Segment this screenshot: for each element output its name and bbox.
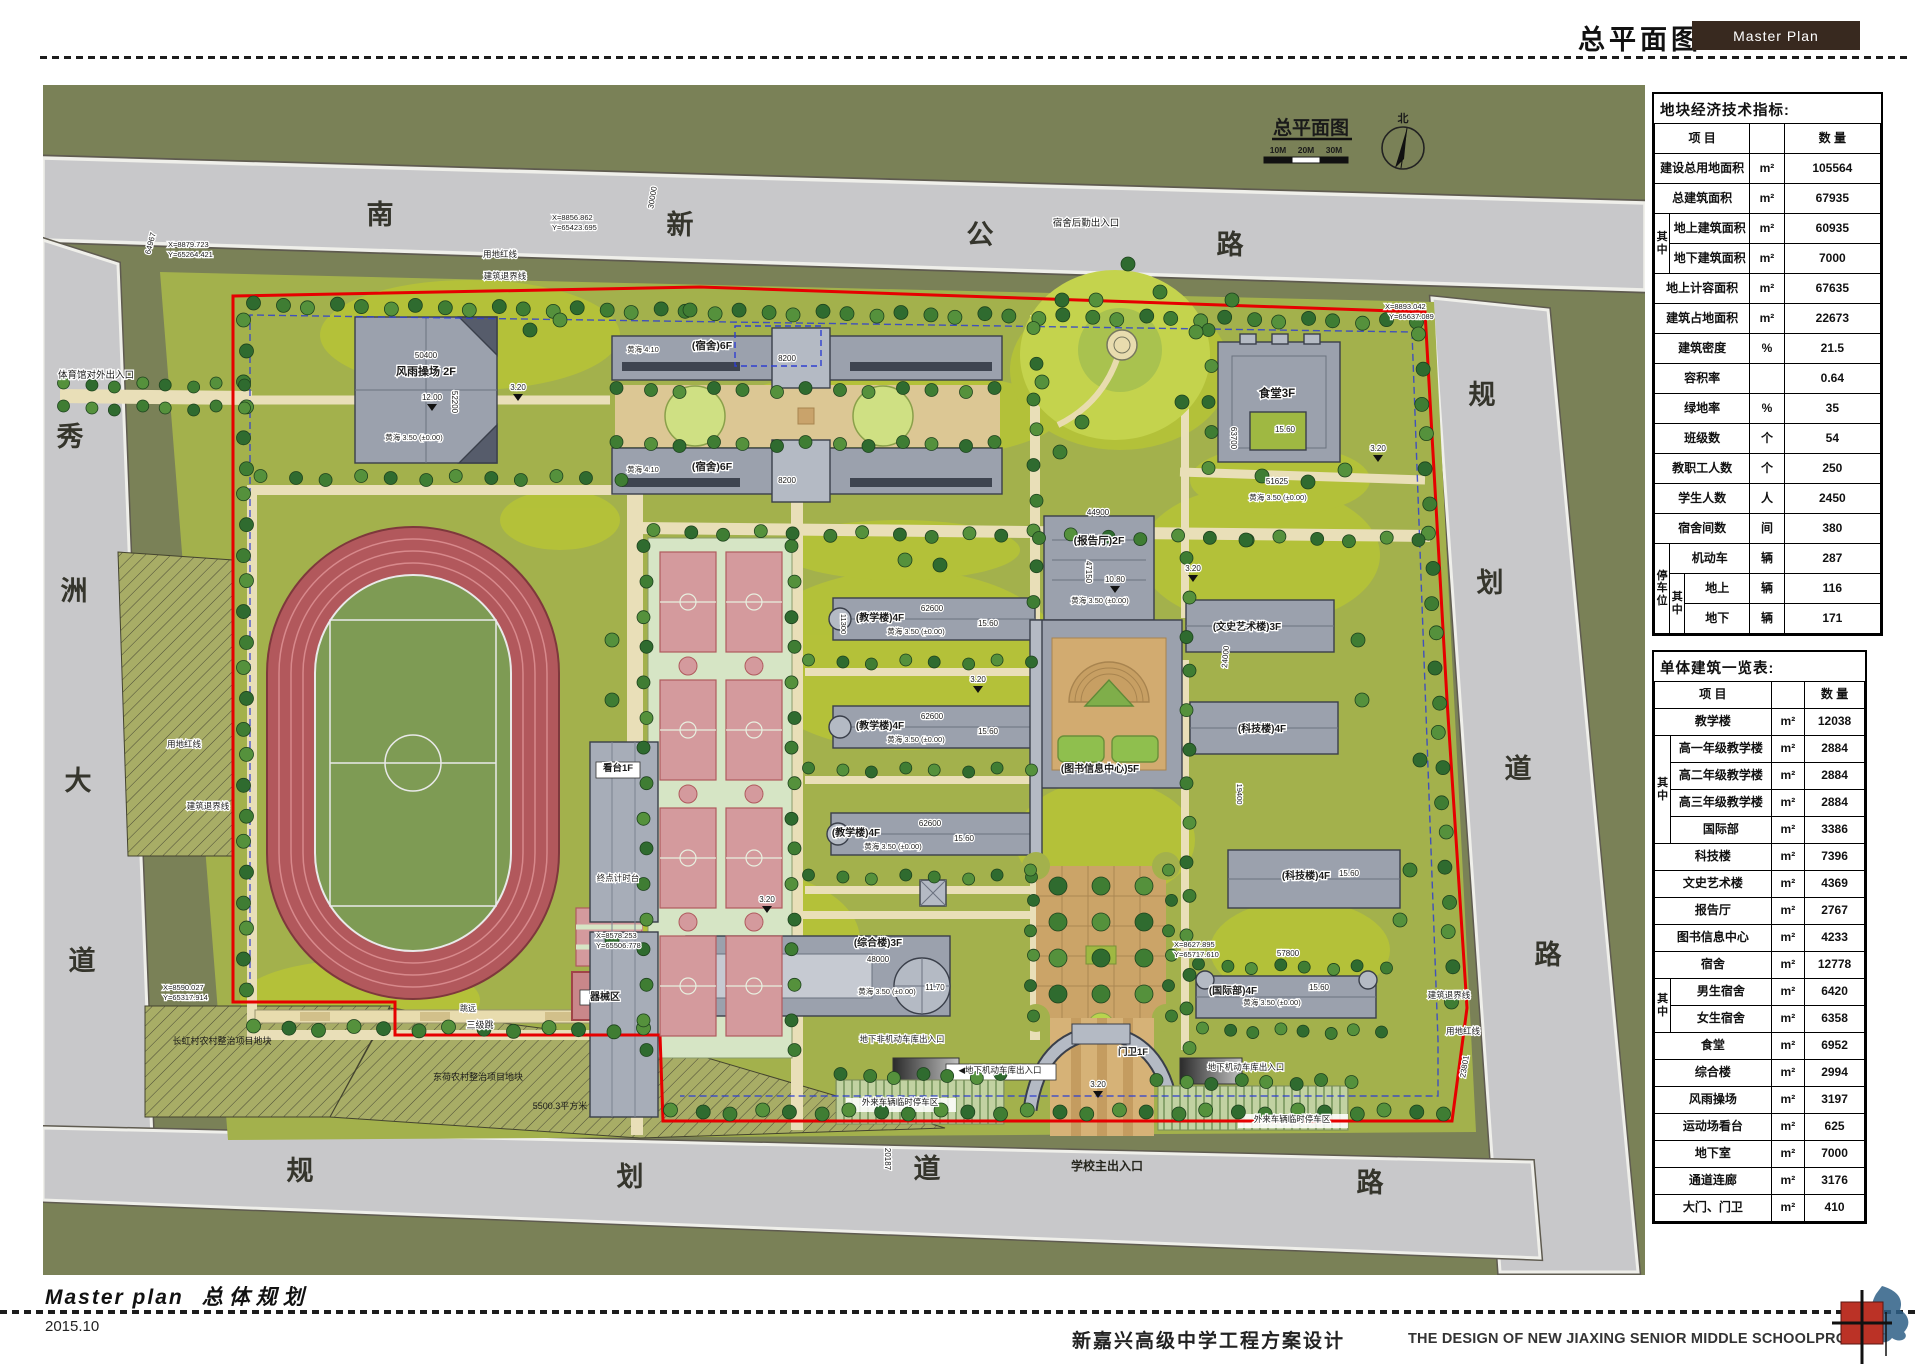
tree (856, 526, 869, 539)
tree (1164, 311, 1178, 325)
table-cell: m² (1771, 871, 1804, 898)
map-label: 黄海 3.50 (±0.00) (887, 734, 945, 744)
tree (1180, 856, 1193, 869)
table-cell: 地下 (1685, 604, 1750, 634)
table-cell: 60935 (1784, 214, 1880, 244)
table-cell: m² (1771, 790, 1804, 817)
tree (1355, 693, 1369, 707)
table-cell: m² (1771, 817, 1804, 844)
tree (507, 1024, 521, 1038)
tree (1030, 423, 1043, 436)
table-row: 其中地上建筑面积m²60935 (1655, 214, 1881, 244)
tree (893, 528, 906, 541)
table-cell: 地下室 (1655, 1141, 1772, 1168)
tree (1356, 316, 1370, 330)
project-title-cn: 新嘉兴高级中学工程方案设计 (1072, 1326, 1345, 1353)
tree (1377, 1103, 1391, 1117)
table-cell: 35 (1784, 394, 1880, 424)
tree (991, 762, 1003, 774)
tree (377, 1022, 391, 1036)
map-label: 路 (1535, 939, 1563, 970)
tree (240, 518, 254, 532)
table-row: 通道连廊m²3176 (1655, 1168, 1865, 1195)
tree (1235, 1074, 1248, 1087)
map-label: 48000 (867, 955, 890, 964)
tree (1092, 985, 1110, 1003)
tree (1175, 395, 1189, 409)
tree (1028, 1010, 1040, 1022)
table-cell: 7000 (1805, 1141, 1865, 1168)
tree (924, 308, 938, 322)
map-label: 47150 (1084, 561, 1093, 584)
tree (1163, 925, 1175, 937)
tree (1025, 925, 1037, 937)
table-row: 教职工人数个250 (1655, 454, 1881, 484)
map-label: X=8578.253 (596, 931, 637, 940)
tree (897, 382, 910, 395)
tree (933, 558, 947, 572)
map-label: 食堂3F (1259, 386, 1295, 400)
tree (1441, 925, 1455, 939)
tree (1092, 877, 1110, 895)
map-label: 3.20 (510, 383, 526, 392)
tree (1225, 293, 1239, 307)
tree (961, 1105, 975, 1119)
table-cell: 个 (1750, 424, 1784, 454)
tree (1426, 561, 1440, 575)
tree (1431, 725, 1445, 739)
table-cell: 2450 (1784, 484, 1880, 514)
tree (708, 307, 722, 321)
tree (1239, 533, 1253, 547)
map-label: 门卫1F (1118, 1046, 1148, 1058)
tree (159, 402, 171, 414)
tree (963, 766, 975, 778)
tree (756, 1103, 770, 1117)
table-row: 大门、门卫m²410 (1655, 1195, 1865, 1222)
tree (1326, 314, 1340, 328)
map-label: Y=65717.610 (1174, 950, 1219, 959)
table-cell: 通道连廊 (1655, 1168, 1772, 1195)
tree (788, 575, 801, 588)
map-label: X=8590.027 (163, 983, 204, 992)
footer-dashed-rule (0, 1310, 1920, 1314)
map-label: 看台1F (603, 762, 633, 774)
tree (319, 474, 332, 487)
table-cell: 报告厅 (1655, 898, 1772, 925)
tree (640, 913, 653, 926)
tree (960, 440, 973, 453)
tree (736, 384, 749, 397)
tree (240, 574, 254, 588)
table-cell: 建设总用地面积 (1655, 154, 1750, 184)
footer-title-cn: 总体规划 (202, 1286, 310, 1309)
tree (1380, 531, 1393, 544)
tree (1135, 985, 1153, 1003)
table-row: 地下室m²7000 (1655, 1141, 1865, 1168)
map-label: 体育馆对外出入口 (58, 369, 134, 381)
table-cell: 0.64 (1784, 364, 1880, 394)
tree (664, 1103, 678, 1117)
tree (254, 470, 267, 483)
tree (708, 436, 721, 449)
table-cell: 个 (1750, 454, 1784, 484)
table-cell: 班级数 (1655, 424, 1750, 454)
table-cell: m² (1771, 898, 1804, 925)
table-cell (1750, 364, 1784, 394)
tree (542, 1021, 556, 1035)
map-label: 跳远 (460, 1003, 476, 1013)
tree (803, 869, 815, 881)
table-cell: m² (1750, 154, 1784, 184)
tree (1135, 913, 1153, 931)
tree (1202, 324, 1215, 337)
table-cell: 6420 (1805, 979, 1865, 1006)
tree (237, 660, 251, 674)
tree (1183, 743, 1196, 756)
tree (240, 344, 254, 358)
tree (485, 472, 498, 485)
map-label: 黄海 4.10 (627, 344, 659, 354)
map-label: Y=65637.089 (1389, 312, 1434, 321)
tree (732, 303, 746, 317)
tree (312, 1023, 326, 1037)
tree (1315, 1074, 1328, 1087)
map-label: 三级跳 (466, 1019, 493, 1030)
tree (640, 712, 653, 725)
tree (1351, 960, 1363, 972)
table-title: 单体建筑一览表: (1654, 652, 1865, 681)
map-label: 51625 (1266, 477, 1289, 486)
firm-logo (1830, 1284, 1916, 1368)
map-label: 44900 (1087, 508, 1110, 517)
tree (1260, 1076, 1273, 1089)
tree (1026, 656, 1038, 668)
table-row: 其中高一年级教学楼m²2884 (1655, 736, 1865, 763)
table-cell: 建筑占地面积 (1655, 304, 1750, 334)
tree (1419, 427, 1433, 441)
tree (978, 307, 992, 321)
table-row: 学生人数人2450 (1655, 484, 1881, 514)
table-cell: 高二年级教学楼 (1671, 763, 1771, 790)
tree (1049, 949, 1067, 967)
tree (1075, 415, 1089, 429)
table-cell: m² (1750, 244, 1784, 274)
tree (1425, 597, 1439, 611)
table-cell: 67935 (1784, 184, 1880, 214)
table-row: 建设总用地面积m²105564 (1655, 154, 1881, 184)
tree (1139, 1105, 1153, 1119)
tree (1049, 985, 1067, 1003)
tree (237, 896, 251, 910)
tree (1028, 949, 1040, 961)
map-label: 3.20 (1090, 1080, 1106, 1089)
tree (1423, 497, 1437, 511)
tree (785, 812, 798, 825)
table-cell: 教职工人数 (1655, 454, 1750, 484)
tree (1412, 534, 1425, 547)
tree (754, 525, 767, 538)
tree (647, 524, 660, 537)
tree (159, 379, 171, 391)
map-label: (教学楼)4F (832, 826, 880, 839)
tree (462, 303, 476, 317)
tree (948, 310, 962, 324)
tree (1180, 631, 1193, 644)
tree (842, 1103, 856, 1117)
tree (1345, 1076, 1358, 1089)
tree (925, 530, 938, 543)
map-label: 路 (1217, 229, 1245, 260)
tree (1053, 445, 1067, 459)
table-row: 宿舍m²12778 (1655, 952, 1865, 979)
tree (1026, 764, 1038, 776)
map-label: 划 (1477, 568, 1504, 598)
tree (637, 611, 650, 624)
table-row: 教学楼m²12038 (1655, 709, 1865, 736)
table-row: 风雨操场m²3197 (1655, 1087, 1865, 1114)
tree (717, 528, 730, 541)
tree (1205, 360, 1218, 373)
tree (1183, 889, 1196, 902)
tree (988, 382, 1001, 395)
map-label: 20187 (883, 1148, 892, 1171)
tree (1172, 1107, 1186, 1121)
tree (516, 302, 530, 316)
map-label: 用地红线 (167, 739, 202, 749)
map-label: (报告厅)2F (1074, 534, 1125, 547)
tree (894, 305, 908, 319)
tree (210, 377, 222, 389)
tree (384, 472, 397, 485)
table-header-cell (1750, 124, 1784, 154)
map-label: 30M (1326, 145, 1343, 155)
tree (86, 402, 98, 414)
tree (928, 871, 940, 883)
table-cell: 宿舍 (1655, 952, 1772, 979)
table-cell: 4233 (1805, 925, 1865, 952)
tree (824, 529, 837, 542)
tree (1025, 864, 1037, 876)
tree (188, 404, 200, 416)
table-cell: 高一年级教学楼 (1671, 736, 1771, 763)
table-cell: 高三年级教学楼 (1671, 790, 1771, 817)
tree (1218, 310, 1232, 324)
tree (1027, 322, 1040, 335)
tree (1166, 1010, 1178, 1022)
map-label: 黄海 3.50 (±0.00) (858, 986, 916, 996)
sheet-title: 总平面图 (1578, 18, 1702, 57)
tree (897, 436, 910, 449)
map-label: (教学楼)4F (856, 611, 904, 624)
map-label: 外来车辆临时停车区 (862, 1097, 939, 1107)
table-header-cell: 数 量 (1784, 124, 1880, 154)
map-label: (科技楼)4F (1238, 722, 1286, 735)
map-label: 50400 (415, 351, 438, 360)
tree (579, 472, 592, 485)
tree (637, 540, 650, 553)
map-label: 15.60 (1275, 425, 1296, 434)
tree (785, 943, 798, 956)
tree (1412, 327, 1426, 341)
running-track (267, 527, 559, 999)
tree (788, 978, 801, 991)
tree (901, 1107, 915, 1121)
tree (237, 952, 251, 966)
court-pad (679, 913, 697, 931)
table-cell: % (1750, 394, 1784, 424)
tree (1053, 1105, 1067, 1119)
tree (1180, 1002, 1193, 1015)
map-label: 总平面图 (1273, 116, 1349, 139)
tree (640, 777, 653, 790)
map-label: ◀地下机动车库出入口 (958, 1065, 1041, 1075)
tree (1428, 661, 1442, 675)
tree (1055, 293, 1069, 307)
tree (240, 691, 254, 705)
tree (1086, 310, 1100, 324)
tree (1338, 463, 1352, 477)
map-label: 62600 (921, 712, 944, 721)
tree (640, 978, 653, 991)
tree (1328, 963, 1340, 975)
tree (1056, 308, 1070, 322)
tree (788, 712, 801, 725)
tree (1311, 532, 1324, 545)
tree (605, 633, 619, 647)
tree (247, 296, 261, 310)
tree (887, 1072, 900, 1085)
master-plan-badge: Master Plan (1692, 21, 1860, 50)
map-label: 长虹村农村整治项目地块 (172, 1035, 271, 1046)
table-cell: m² (1771, 709, 1804, 736)
map-label: X=8893.042 (1385, 302, 1426, 311)
map-label: 62600 (921, 604, 944, 613)
tree (1092, 913, 1110, 931)
tree (137, 400, 149, 412)
table-cell: 6358 (1805, 1006, 1865, 1033)
map-label: 建筑退界线 (484, 271, 527, 281)
tree (865, 873, 877, 885)
tree (1180, 777, 1193, 790)
table-cell: 国际部 (1671, 817, 1771, 844)
table-row: 绿地率%35 (1655, 394, 1881, 424)
table-cell: m² (1771, 1114, 1804, 1141)
map-label: 12.00 (422, 393, 443, 402)
tree (696, 1105, 710, 1119)
tree (1418, 462, 1432, 476)
tree (837, 656, 849, 668)
table-cell: m² (1771, 952, 1804, 979)
tree (1203, 531, 1216, 544)
map-label: (宿舍)6F (692, 460, 733, 473)
tree (1049, 913, 1067, 931)
tree (771, 440, 784, 453)
tree (870, 309, 884, 323)
map-label: X=8879.723 (168, 240, 209, 249)
table-cell: 间 (1750, 514, 1784, 544)
map-label: 大 (65, 766, 92, 796)
map-label: 秀 (56, 422, 84, 452)
tree (237, 431, 251, 445)
tree (736, 438, 749, 451)
table-cell: 综合楼 (1655, 1060, 1772, 1087)
tree (1135, 877, 1153, 895)
tree (683, 303, 697, 317)
table-cell: 地下建筑面积 (1670, 244, 1750, 274)
map-label: 洲 (61, 576, 88, 606)
tree (1030, 560, 1043, 573)
tree (963, 658, 975, 670)
table-cell: 12778 (1805, 952, 1865, 979)
table-row: 建筑占地面积m²22673 (1655, 304, 1881, 334)
tree (1197, 1022, 1209, 1034)
table-row: 科技楼m²7396 (1655, 844, 1865, 871)
map-label: 15.60 (1309, 983, 1330, 992)
tree (237, 313, 251, 327)
map-label: 10.80 (1105, 575, 1126, 584)
tree (1438, 860, 1452, 874)
tree (1297, 1025, 1309, 1037)
map-label: 黄海 3.50 (±0.00) (1249, 492, 1307, 502)
header-dashed-rule (40, 56, 1908, 59)
tree (347, 1020, 361, 1034)
tree (988, 436, 1001, 449)
table-cell: m² (1750, 274, 1784, 304)
table-row: 建筑密度%21.5 (1655, 334, 1881, 364)
map-label: Y=65506.778 (596, 941, 641, 950)
map-label: 地下非机动车库出入口 (859, 1034, 944, 1044)
table-cell: 辆 (1750, 544, 1784, 574)
table-cell: 2767 (1805, 898, 1865, 925)
table-cell: 7000 (1784, 244, 1880, 274)
tree (1027, 596, 1040, 609)
table-cell: 男生宿舍 (1671, 979, 1771, 1006)
map-label: Y=65317.914 (163, 993, 208, 1002)
map-label: 15.60 (978, 727, 999, 736)
map-label: 南 (367, 200, 394, 230)
map-label: 道 (914, 1153, 941, 1184)
tree (685, 526, 698, 539)
tree (570, 301, 584, 315)
tree (1351, 633, 1365, 647)
table-row: 高二年级教学楼m²2884 (1655, 763, 1865, 790)
tree (1183, 816, 1196, 829)
tree (240, 747, 254, 761)
tree (1393, 913, 1407, 927)
map-label: 黄海 4.10 (627, 464, 659, 474)
map-label: 黄海 3.50 (±0.00) (385, 432, 443, 442)
tree (240, 636, 254, 650)
tree (1049, 877, 1067, 895)
table-row: 国际部m²3386 (1655, 817, 1865, 844)
map-label: 器械区 (589, 990, 620, 1003)
tree (785, 741, 798, 754)
map-label: (国际部)4F (1209, 984, 1257, 997)
map-label: Y=65264.421 (168, 250, 213, 259)
tree (237, 834, 251, 848)
tree (782, 1105, 796, 1119)
tree (925, 438, 938, 451)
project-title-en: THE DESIGN OF NEW JIAXING SENIOR MIDDLE … (1408, 1331, 1885, 1347)
tree (553, 313, 567, 327)
table-cell: 大门、门卫 (1655, 1195, 1772, 1222)
tree (1025, 980, 1037, 992)
map-label: 公 (967, 220, 994, 250)
tree (108, 381, 120, 393)
tree (788, 1044, 801, 1057)
tree (1035, 375, 1049, 389)
